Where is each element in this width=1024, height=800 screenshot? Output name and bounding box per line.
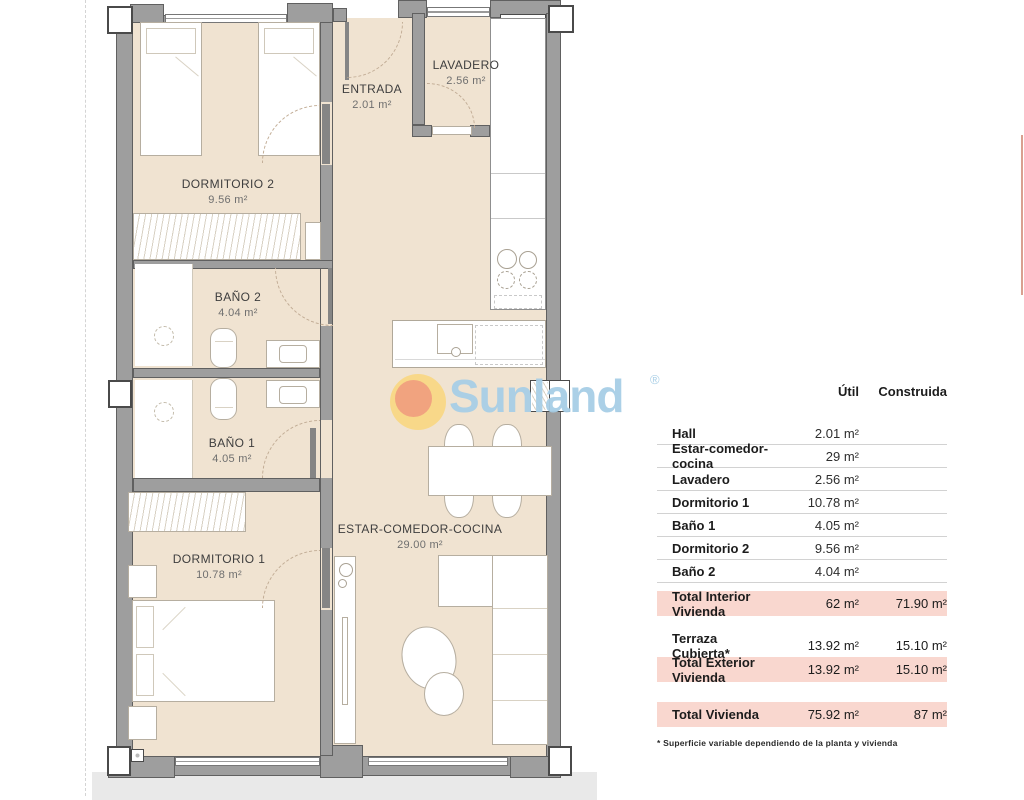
total-construida: 15.10 m² <box>859 662 947 677</box>
bed2-pillow <box>264 28 314 54</box>
room-name: BAÑO 1 <box>209 436 255 450</box>
tv-unit <box>334 556 356 744</box>
shower-bano1 <box>135 380 193 478</box>
exterior-box-top-right <box>548 5 574 33</box>
row-label: Dormitorio 2 <box>672 541 773 556</box>
row-util: 29 m² <box>773 449 859 464</box>
sink-basin <box>279 345 307 363</box>
row-label: Hall <box>672 426 773 441</box>
room-name: ENTRADA <box>342 82 402 96</box>
dining-table <box>428 446 552 496</box>
room-area: 2.56 m² <box>433 75 500 87</box>
ac-box-divider <box>549 381 550 411</box>
room-area: 4.05 m² <box>209 453 255 465</box>
total-exterior-row: Total Exterior Vivienda 13.92 m² 15.10 m… <box>657 657 947 682</box>
row-label: Baño 1 <box>672 518 773 533</box>
wall-bano2-bano1 <box>133 368 320 378</box>
table-row-bano-2: Baño 2 4.04 m² <box>657 560 947 583</box>
room-label-dormitorio-1: DORMITORIO 1 10.78 m² <box>173 552 266 581</box>
burner <box>497 249 517 269</box>
sofa-seam <box>493 654 547 655</box>
toilet-line <box>215 341 233 342</box>
wall-top-left-block <box>130 4 164 23</box>
shower-bano2 <box>135 264 193 366</box>
bed1-pillow <box>146 28 196 54</box>
window-dorm1-bottom <box>175 757 320 766</box>
ac-box-left <box>108 380 132 408</box>
wall-top-corner <box>287 3 333 23</box>
toilet-line <box>215 407 233 408</box>
room-label-bano-1: BAÑO 1 4.05 m² <box>209 436 255 465</box>
row-util: 9.56 m² <box>773 541 859 556</box>
sofa-seam <box>493 700 547 701</box>
room-name: ESTAR-COMEDOR-COCINA <box>338 522 502 536</box>
coffee-table-small <box>424 672 464 716</box>
wall-lavadero-left <box>412 13 425 125</box>
total-label: Total Interior Vivienda <box>672 589 773 619</box>
total-interior-row: Total Interior Vivienda 62 m² 71.90 m² <box>657 591 947 616</box>
total-construida: 87 m² <box>859 707 947 722</box>
room-area: 10.78 m² <box>173 569 266 581</box>
sink-bano2 <box>266 340 320 368</box>
room-label-bano-2: BAÑO 2 4.04 m² <box>215 290 261 319</box>
row-label: Estar-comedor-cocina <box>672 441 773 471</box>
col-header-util: Útil <box>773 384 859 404</box>
shower-drain <box>154 326 174 346</box>
counter-line <box>491 218 545 219</box>
tv-screen <box>342 617 348 705</box>
total-vivienda-row: Total Vivienda 75.92 m² 87 m² <box>657 702 947 727</box>
room-label-estar-comedor-cocina: ESTAR-COMEDOR-COCINA 29.00 m² <box>338 522 502 551</box>
table-row-estar: Estar-comedor-cocina 29 m² <box>657 445 947 468</box>
cabinet-dorm2 <box>305 222 321 260</box>
window-lavadero-top <box>427 7 490 17</box>
total-util: 62 m² <box>773 596 859 611</box>
counter-line <box>491 173 545 174</box>
sofa-main <box>492 555 548 745</box>
table-footnote: * Superficie variable dependiendo de la … <box>657 738 947 748</box>
table-row-lavadero: Lavadero 2.56 m² <box>657 468 947 491</box>
row-util: 4.05 m² <box>773 518 859 533</box>
toilet-bano2 <box>210 328 237 368</box>
wall-entrada-top <box>333 8 347 22</box>
table-row-dormitorio-1: Dormitorio 1 10.78 m² <box>657 491 947 514</box>
window-estar-bottom <box>368 757 508 766</box>
row-label: Lavadero <box>672 472 773 487</box>
total-util: 13.92 m² <box>773 662 859 677</box>
room-name: LAVADERO <box>433 58 500 72</box>
room-name: DORMITORIO 1 <box>173 552 266 566</box>
edge-accent-line <box>1021 135 1023 295</box>
room-area: 9.56 m² <box>182 194 275 206</box>
stove <box>495 247 541 295</box>
room-area: 2.01 m² <box>342 99 402 111</box>
burner <box>519 271 537 289</box>
exterior-box-bottom-left <box>107 746 131 776</box>
property-line <box>85 0 87 796</box>
row-label: Baño 2 <box>672 564 773 579</box>
room-label-entrada: ENTRADA 2.01 m² <box>342 82 402 111</box>
total-label: Total Vivienda <box>672 707 773 722</box>
sink-bano1 <box>266 380 320 408</box>
floorplan-page: DORMITORIO 2 9.56 m² ENTRADA 2.01 m² LAV… <box>0 0 1024 800</box>
row-util: 2.56 m² <box>773 472 859 487</box>
meter-box <box>131 749 144 762</box>
nightstand-top <box>128 565 157 598</box>
wardrobe-dorm1 <box>128 492 246 532</box>
ac-box-estar-right <box>530 380 570 412</box>
room-area: 29.00 m² <box>338 539 502 551</box>
burner <box>497 271 515 289</box>
total-label: Total Exterior Vivienda <box>672 655 773 685</box>
row-util: 10.78 m² <box>773 495 859 510</box>
total-util: 75.92 m² <box>773 707 859 722</box>
nightstand-bottom <box>128 706 157 740</box>
tv-unit-dot <box>338 579 347 588</box>
wall-bano1-dorm1 <box>133 478 320 492</box>
door-leaf-dorm1 <box>322 548 330 608</box>
areas-table: Útil Construida Hall 2.01 m² Estar-comed… <box>657 384 947 748</box>
room-label-lavadero: LAVADERO 2.56 m² <box>433 58 500 87</box>
ac-box-hatch <box>532 382 548 410</box>
header-spacer <box>657 384 773 404</box>
table-header: Útil Construida <box>657 384 947 404</box>
row-util: 2.01 m² <box>773 426 859 441</box>
wardrobe-dorm2 <box>133 213 301 260</box>
door-leaf-dorm2 <box>322 104 330 164</box>
door-opening-bano1 <box>321 420 332 478</box>
tv-unit-dot <box>339 563 353 577</box>
exterior-box-top-left <box>107 6 133 34</box>
col-header-construida: Construida <box>859 384 947 404</box>
shower-drain <box>154 402 174 422</box>
room-label-dormitorio-2: DORMITORIO 2 9.56 m² <box>182 177 275 206</box>
bed-pillow-b <box>136 654 154 696</box>
faucet <box>451 347 461 357</box>
room-name: BAÑO 2 <box>215 290 261 304</box>
exterior-box-bottom-right <box>548 746 572 776</box>
table-row-bano-1: Baño 1 4.05 m² <box>657 514 947 537</box>
terraza-construida: 15.10 m² <box>859 638 947 653</box>
table-row-dormitorio-2: Dormitorio 2 9.56 m² <box>657 537 947 560</box>
island-line <box>395 359 545 360</box>
row-label: Dormitorio 1 <box>672 495 773 510</box>
burner <box>519 251 537 269</box>
row-util: 4.04 m² <box>773 564 859 579</box>
sink-basin <box>279 386 307 404</box>
room-area: 4.04 m² <box>215 307 261 319</box>
door-leaf-lavadero <box>432 126 472 135</box>
dishwasher-dashed <box>494 295 542 309</box>
terraza-util: 13.92 m² <box>773 638 859 653</box>
room-name: DORMITORIO 2 <box>182 177 275 191</box>
toilet-bano1 <box>210 378 237 420</box>
sofa-seam <box>493 608 547 609</box>
kitchen-island <box>392 320 546 368</box>
total-construida: 71.90 m² <box>859 596 947 611</box>
bed-pillow-a <box>136 606 154 648</box>
